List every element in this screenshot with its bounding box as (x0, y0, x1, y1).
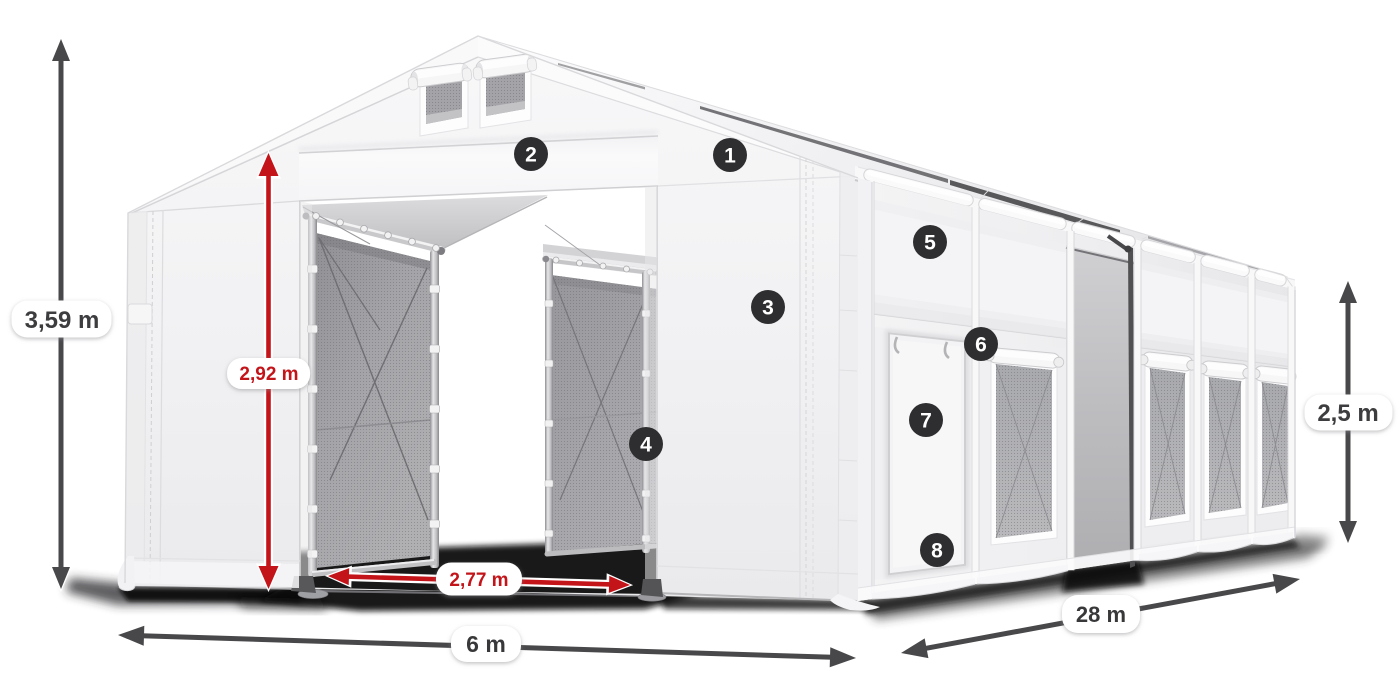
svg-text:6: 6 (975, 334, 987, 357)
svg-text:2,5 m: 2,5 m (1317, 400, 1378, 427)
svg-text:2: 2 (525, 144, 537, 167)
svg-text:4: 4 (640, 434, 652, 457)
svg-text:8: 8 (931, 540, 943, 563)
svg-text:28 m: 28 m (1076, 602, 1126, 627)
svg-text:2,92 m: 2,92 m (239, 364, 298, 385)
svg-text:1: 1 (724, 145, 736, 168)
svg-text:2,77 m: 2,77 m (449, 570, 508, 591)
svg-text:5: 5 (924, 232, 936, 255)
svg-text:3: 3 (762, 297, 774, 320)
svg-text:7: 7 (920, 410, 932, 433)
svg-text:3,59 m: 3,59 m (25, 307, 100, 334)
svg-text:6 m: 6 m (466, 631, 506, 657)
